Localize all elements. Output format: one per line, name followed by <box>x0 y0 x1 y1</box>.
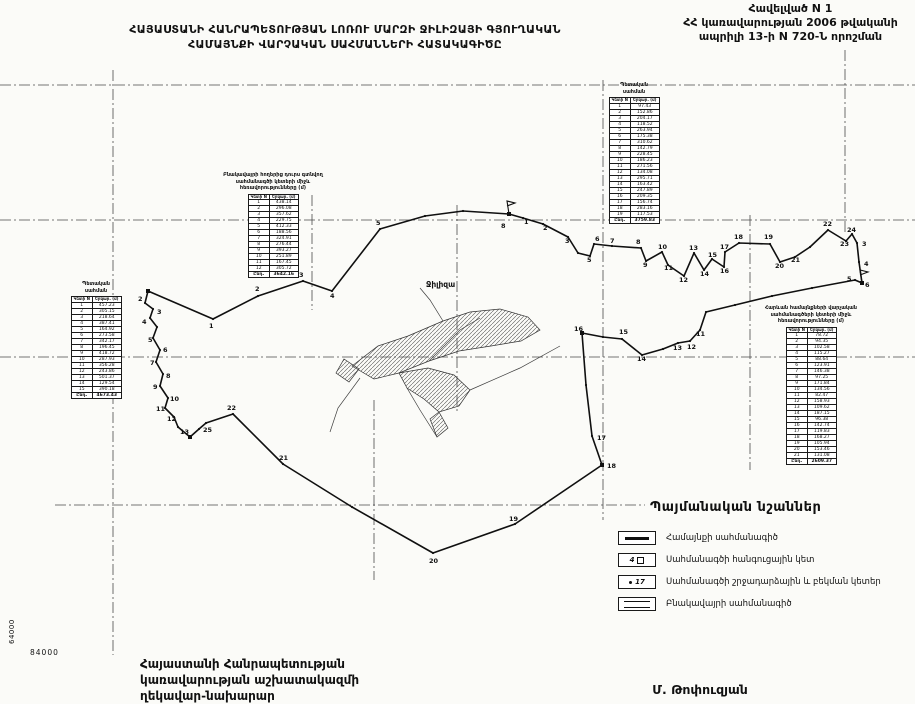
table-title: Բնակավայրի հողերից դուրս գտնվողսահմանագծ… <box>214 172 332 192</box>
boundary-point-label: 15 <box>708 251 718 259</box>
turning-point-dot <box>724 251 726 253</box>
column-header: Կետի N <box>71 297 92 303</box>
turning-point-dot <box>156 326 158 328</box>
turning-point-dot <box>432 552 434 554</box>
boundary-point-label: 13 <box>689 244 698 252</box>
boundary-point-label: 22 <box>227 404 236 412</box>
turning-point-dot <box>771 295 773 297</box>
turning-point-dot <box>198 428 200 430</box>
turning-point-dot <box>302 280 304 282</box>
turning-point-dot <box>661 251 663 253</box>
road-line <box>420 288 443 321</box>
turning-point-dot <box>159 385 161 387</box>
boundary-point-label: 16 <box>574 325 584 333</box>
table: Կետի NԵրկար. (մ)1457.232305.153218.64438… <box>71 296 122 399</box>
turning-point-dot <box>232 413 234 415</box>
turning-point-dot <box>738 242 740 244</box>
boundary-point-label: 14 <box>637 355 647 363</box>
table-total-row: Ընդ.2609.37 <box>786 459 836 465</box>
turning-point-dot <box>611 245 613 247</box>
turning-point-dot <box>177 426 179 428</box>
office-line1: Հայաստանի Հանրապետության <box>140 656 420 672</box>
office-line2: կառավարության աշխատակազմի <box>140 672 420 688</box>
boundary-point-label: 24 <box>847 226 857 234</box>
boundary-point-label: 4 <box>142 318 147 326</box>
column-header: Կետի N <box>786 327 807 333</box>
boundary-point-label: 7 <box>610 237 615 245</box>
turning-point-dot <box>811 287 813 289</box>
boundary-point-label: 15 <box>619 328 629 336</box>
settlement-area <box>430 412 448 437</box>
table-title: Պետականսահման <box>592 82 676 95</box>
turning-point-dot <box>854 279 856 281</box>
turning-point-dot <box>769 243 771 245</box>
issuing-office-block: Հայաստանի Հանրապետության կառավարության ա… <box>140 656 420 704</box>
boundary-point-label: 8 <box>636 238 641 246</box>
annex-line2: ՀՀ կառավարության 2006 թվականի <box>668 16 913 30</box>
boundary-point-label: 6 <box>865 281 870 289</box>
boundary-point-label: 18 <box>607 462 617 470</box>
signature-name: Մ. Թոփուզյան <box>590 682 810 697</box>
annex-line3: ապրիլի 13-ի N 720-Ն որոշման <box>668 30 913 44</box>
page-title-line2: ՀԱՄԱՅՆՔԻ ՎԱՐՉԱԿԱՆ ՍԱՀՄԱՆՆԵՐԻ ՀԱՏԱԿԱԳԻԾԸ <box>125 37 565 52</box>
road-line <box>330 378 360 432</box>
boundary-point-label: 3 <box>157 308 162 316</box>
legend-item-junction-point: 4 Սահմանագծի հանգուցային կետ <box>618 549 910 571</box>
table-total-row: Ընդ.3759.83 <box>609 217 659 223</box>
boundary-point-label: 13 <box>673 344 682 352</box>
road-line <box>470 346 560 390</box>
boundary-point-label: 9 <box>153 383 158 391</box>
turning-point-dot <box>577 252 579 254</box>
legend-item-label: Սահմանագծի հանգուցային կետ <box>666 555 814 565</box>
legend-item-settlement-boundary: Բնակավայրի սահմանագիծ <box>618 593 910 615</box>
column-header: Երկար. (մ) <box>630 98 659 104</box>
border-lengths-table-right: Հարևան համայնքների վարչականսահմանագծերի … <box>752 305 870 465</box>
column-header: Կետի N <box>609 98 630 104</box>
community-boundary-line-icon <box>618 531 656 545</box>
boundary-point-label: 3 <box>565 237 570 245</box>
turning-point-dot <box>351 506 353 508</box>
boundary-point-label: 12 <box>687 343 696 351</box>
boundary-point-label: 4 <box>864 260 869 268</box>
turning-point-dot <box>212 318 214 320</box>
boundary-point-label: 1 <box>209 322 214 330</box>
turning-sample-number: 17 <box>635 578 645 586</box>
column-header: Երկար. (մ) <box>92 297 121 303</box>
column-header: Կետի N <box>248 194 269 200</box>
boundary-point-label: 19 <box>509 515 519 523</box>
turning-point-icon: 17 <box>618 575 656 589</box>
boundary-point-label: 11 <box>696 330 706 338</box>
border-lengths-table-top-right: Պետականսահման Կետի NԵրկար. (մ)197.432152… <box>592 82 676 224</box>
boundary-point-label: 17 <box>597 434 606 442</box>
turning-point-dot <box>155 361 157 363</box>
turning-point-dot <box>734 304 736 306</box>
legend-item-label: Սահմանագծի շրջադարձային և բեկման կետեր <box>666 577 881 587</box>
legend: Պայմանական նշաններ Համայնքի սահմանագիծ 4… <box>618 500 910 615</box>
boundary-point-label: 20 <box>775 262 785 270</box>
turning-point-dot <box>462 210 464 212</box>
legend-title: Պայմանական նշաններ <box>650 500 910 515</box>
boundary-point-label: 2 <box>543 224 548 232</box>
junction-sample-number: 4 <box>630 556 635 564</box>
turning-point-dot <box>162 373 164 375</box>
boundary-point-label: 1 <box>524 218 529 226</box>
turning-point-dot <box>379 228 381 230</box>
office-line3: ղեկավար-նախարար <box>140 688 420 704</box>
turning-point-dot <box>662 348 664 350</box>
settlement-label: Ջիլիզա <box>426 280 455 289</box>
turning-point-dot <box>205 422 207 424</box>
boundary-point-label: 5 <box>148 336 153 344</box>
boundary-point-label: 6 <box>595 235 600 243</box>
page-title-line1: ՀԱՅԱՍՏԱՆԻ ՀԱՆՐԱՊԵՏՈՒԹՅԱՆ ԼՈՌՈՒ ՄԱՐԶԻ ՋԻԼ… <box>125 22 565 37</box>
table: Կետի NԵրկար. (մ)1438.142296.083357.62422… <box>248 194 299 279</box>
legend-item-community-boundary: Համայնքի սահմանագիծ <box>618 527 910 549</box>
table: Կետի NԵրկար. (մ)197.432152.863204.174118… <box>609 97 660 224</box>
turning-point-dot <box>282 463 284 465</box>
turning-point-dot <box>152 308 154 310</box>
turning-point-dot <box>144 302 146 304</box>
boundary-point-label: 10 <box>170 395 180 403</box>
boundary-point-label: 12 <box>679 276 688 284</box>
boundary-point-label: 22 <box>823 220 832 228</box>
boundary-point-label: 20 <box>429 557 439 565</box>
sheet-coordinate-horizontal: 84000 <box>30 648 59 657</box>
boundary-point-label: 16 <box>720 267 730 275</box>
border-lengths-table-left: Պետականսահման Կետի NԵրկար. (մ)1457.23230… <box>52 281 140 399</box>
sheet-coordinate-vertical: 64000 <box>8 604 16 644</box>
boundary-point-label: 25 <box>203 426 213 434</box>
boundary-point-label: 11 <box>664 264 674 272</box>
boundary-point-label: 3 <box>862 240 867 248</box>
boundary-point-label: 6 <box>163 346 168 354</box>
table-total-row: Ընդ.3642.16 <box>248 272 298 278</box>
turning-point-dot <box>689 340 691 342</box>
settlement-boundary-line-icon <box>618 597 656 611</box>
junction-point-marker <box>146 289 150 293</box>
boundary-point-label: 21 <box>279 454 289 462</box>
settlement-area <box>399 368 470 412</box>
turning-point-dot <box>858 261 860 263</box>
legend-item-turning-point: 17 Սահմանագծի շրջադարձային և բեկման կետե… <box>618 571 910 593</box>
junction-point-icon: 4 <box>618 553 656 567</box>
turning-point-dot <box>693 252 695 254</box>
boundary-point-label: 2 <box>255 285 260 293</box>
boundary-point-label: 10 <box>658 243 668 251</box>
boundary-point-label: 13 <box>180 428 189 436</box>
boundary-point-label: 11 <box>156 405 166 413</box>
boundary-point-label: 5 <box>376 219 381 227</box>
turning-point-dot <box>159 349 161 351</box>
boundary-point-label: 21 <box>791 256 801 264</box>
settlement-area <box>336 359 359 382</box>
turning-point-dot <box>167 397 169 399</box>
boundary-point-label: 5 <box>847 275 852 283</box>
legend-item-label: Բնակավայրի սահմանագիծ <box>666 599 792 609</box>
turning-point-dot <box>827 229 829 231</box>
table: Կետի NԵրկար. (մ)178.72294.353102.584115.… <box>786 327 837 466</box>
annex-line1: Հավելված N 1 <box>668 2 913 16</box>
turning-point-dot <box>149 317 151 319</box>
junction-point-marker <box>600 463 604 467</box>
turning-point-dot <box>602 336 604 338</box>
turning-point-dot <box>705 311 707 313</box>
turning-point-dot <box>621 338 623 340</box>
table-title: Պետականսահման <box>52 281 140 294</box>
turning-point-dot <box>593 243 595 245</box>
boundary-point-label: 8 <box>501 222 506 230</box>
boundary-point-label: 12 <box>167 415 176 423</box>
table-total-row: Ընդ.4673.43 <box>71 392 121 398</box>
turning-point-dot <box>257 295 259 297</box>
boundary-point-label: 14 <box>700 270 710 278</box>
boundary-point-label: 19 <box>764 233 774 241</box>
table-title: Հարևան համայնքների վարչականսահմանագծերի … <box>752 305 870 325</box>
boundary-point-label: 17 <box>720 243 729 251</box>
boundary-point-label: 9 <box>643 261 648 269</box>
page-title: ՀԱՅԱՍՏԱՆԻ ՀԱՆՐԱՊԵՏՈՒԹՅԱՆ ԼՈՌՈՒ ՄԱՐԶԻ ՋԻԼ… <box>125 22 565 52</box>
boundary-point-label: 7 <box>150 359 155 367</box>
border-lengths-table-middle: Բնակավայրի հողերից դուրս գտնվողսահմանագծ… <box>214 172 332 278</box>
turning-point-dot <box>591 435 593 437</box>
boundary-point-label: 8 <box>166 372 171 380</box>
turning-point-dot <box>856 242 858 244</box>
boundary-point-label: 5 <box>587 256 592 264</box>
boundary-point-label: 18 <box>734 233 744 241</box>
turning-point-dot <box>514 523 516 525</box>
column-header: Երկար. (մ) <box>807 327 836 333</box>
boundary-point-label: 23 <box>840 240 849 248</box>
boundary-point-label: 4 <box>330 292 335 300</box>
annex-note: Հավելված N 1 ՀՀ կառավարության 2006 թվակա… <box>668 2 913 44</box>
turning-point-dot <box>424 215 426 217</box>
column-header: Երկար. (մ) <box>269 194 298 200</box>
turning-point-dot <box>585 384 587 386</box>
turning-point-dot <box>809 246 811 248</box>
legend-item-label: Համայնքի սահմանագիծ <box>666 533 778 543</box>
turning-point-dot <box>640 247 642 249</box>
